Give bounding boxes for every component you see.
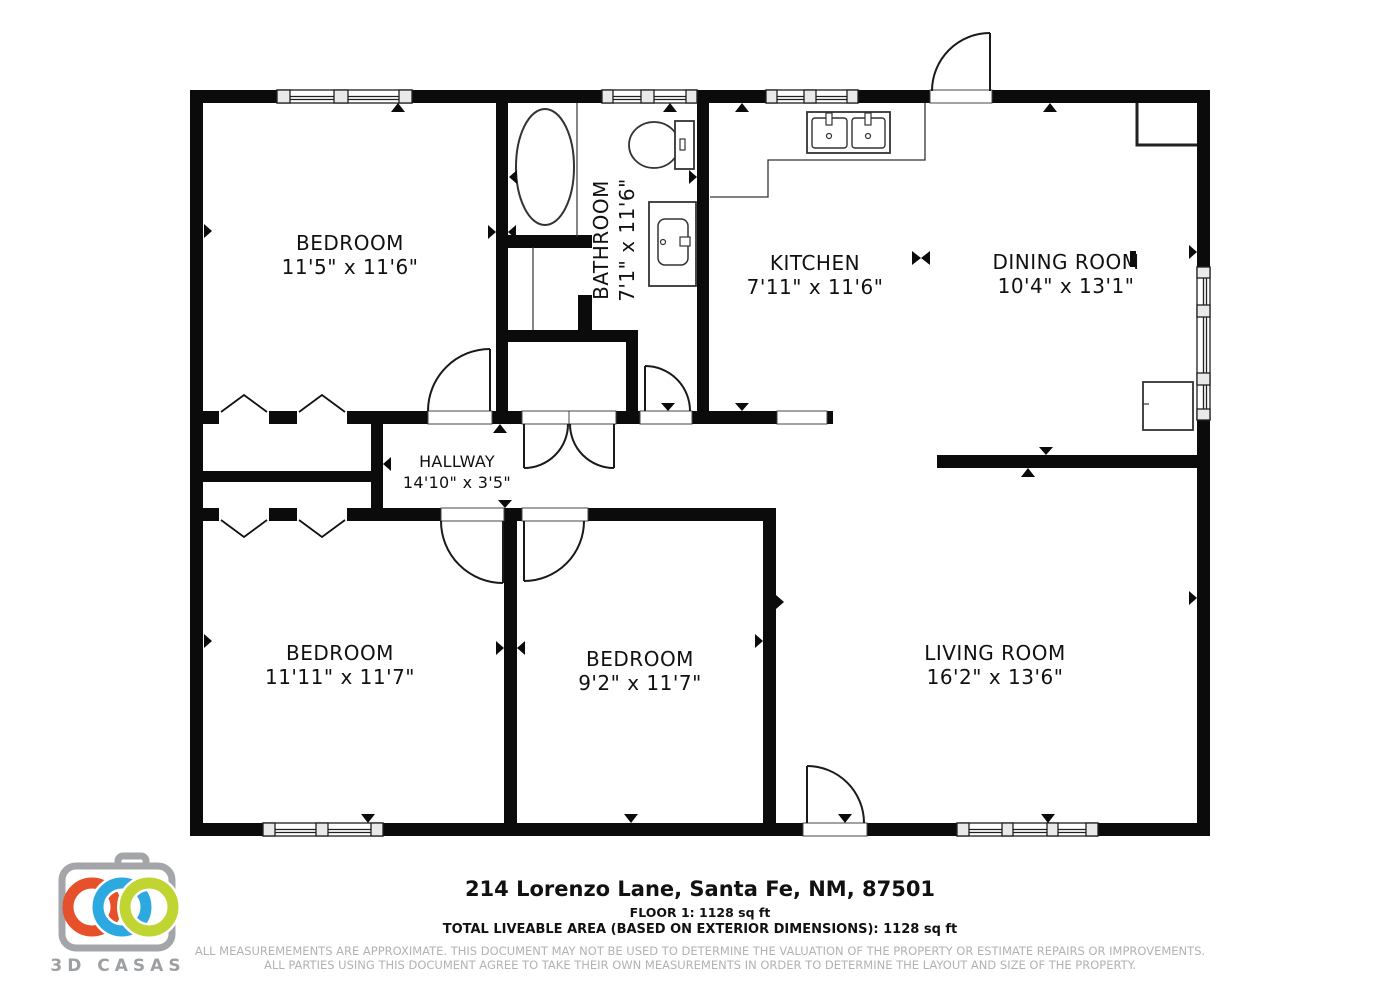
- dining-cabinet-icon: [1143, 382, 1193, 430]
- disclaimer: ALL MEASUREMEMENTS ARE APPROXIMATE. THIS…: [0, 944, 1400, 972]
- wall-closet-divider: [190, 471, 382, 482]
- wall-hallway-top: [190, 411, 833, 424]
- window-bedroom1-top: [277, 90, 412, 103]
- closet-double-door-right: [570, 424, 614, 468]
- disclaimer-line-1: ALL MEASUREMEMENTS ARE APPROXIMATE. THIS…: [0, 944, 1400, 958]
- wall-tub-alcove: [504, 235, 592, 248]
- closet-double-door-left: [524, 424, 568, 468]
- bedroom1-door: [428, 349, 490, 411]
- property-address: 214 Lorenzo Lane, Santa Fe, NM, 87501: [0, 877, 1400, 901]
- bathtub-icon: [516, 109, 574, 225]
- footer: 214 Lorenzo Lane, Santa Fe, NM, 87501 FL…: [0, 845, 1400, 991]
- kitchen-living-opening: [777, 411, 827, 424]
- dining-room-dims: 10'4" x 13'1": [998, 274, 1135, 298]
- toilet-icon: [629, 121, 694, 169]
- bedroom2-door: [441, 521, 503, 583]
- wall-closet-right: [626, 330, 638, 424]
- wall-bathroom-bottom: [504, 330, 638, 342]
- bedroom3-label: BEDROOM: [586, 647, 694, 671]
- wall-bedroom2-bedroom3: [504, 508, 517, 836]
- kitchen-sink-icon: [807, 112, 890, 153]
- wall-bathroom-kitchen: [697, 103, 709, 424]
- kitchen-label: KITCHEN: [770, 251, 860, 275]
- window-living-bottom: [957, 823, 1098, 836]
- entry-door: [932, 33, 990, 91]
- entry-door-threshold: [930, 90, 992, 103]
- wall-openings: [219, 411, 347, 521]
- living-room-label: LIVING ROOM: [924, 641, 1066, 665]
- window-bedroom2-bottom: [263, 823, 383, 836]
- living-door-threshold: [803, 823, 867, 836]
- disclaimer-line-2: ALL PARTIES USING THIS DOCUMENT AGREE TO…: [0, 958, 1400, 972]
- floor-area-line: FLOOR 1: 1128 sq ft: [0, 905, 1400, 920]
- bedroom1-dims: 11'5" x 11'6": [282, 255, 419, 279]
- walls: [190, 90, 1210, 836]
- dining-room-label: DINING ROOM: [992, 250, 1139, 274]
- vanity-sink-icon: [649, 202, 696, 286]
- bedroom3-door: [524, 521, 584, 581]
- wall-bedroom3-living: [763, 508, 776, 836]
- living-room-door: [807, 766, 864, 823]
- hallway-label: HALLWAY: [419, 452, 495, 471]
- window-bathroom-top: [602, 90, 697, 103]
- floor-plan-drawing: BEDROOM 11'5" x 11'6" BATHROOM 7'1" x 11…: [0, 0, 1400, 845]
- total-area-line: TOTAL LIVEABLE AREA (BASED ON EXTERIOR D…: [0, 922, 1400, 937]
- dining-closet-outline: [1137, 103, 1197, 145]
- bedroom3-door-threshold: [522, 508, 588, 521]
- window-kitchen-top: [766, 90, 858, 103]
- bedroom2-dims: 11'11" x 11'7": [265, 665, 415, 689]
- wall-bedroom1-bathroom: [496, 103, 508, 424]
- wall-outer-left: [190, 90, 203, 836]
- kitchen-dims: 7'11" x 11'6": [747, 275, 884, 299]
- bathroom-dims: 7'1" x 11'6": [615, 178, 639, 302]
- bedroom1-door-threshold: [428, 411, 492, 424]
- hallway-dims: 14'10" x 3'5": [403, 473, 511, 492]
- living-room-dims: 16'2" x 13'6": [927, 665, 1064, 689]
- bedroom2-label: BEDROOM: [286, 641, 394, 665]
- wall-hallway-left: [371, 411, 383, 521]
- bedroom2-door-threshold: [441, 508, 504, 521]
- window-dining-right: [1197, 267, 1210, 420]
- bathroom-label: BATHROOM: [589, 180, 613, 300]
- bathroom-door-threshold: [640, 411, 692, 424]
- bedroom1-label: BEDROOM: [296, 231, 404, 255]
- bedroom3-dims: 9'2" x 11'7": [578, 671, 702, 695]
- wall-dining-living: [937, 455, 1210, 468]
- floor-plan-page: BEDROOM 11'5" x 11'6" BATHROOM 7'1" x 11…: [0, 0, 1400, 991]
